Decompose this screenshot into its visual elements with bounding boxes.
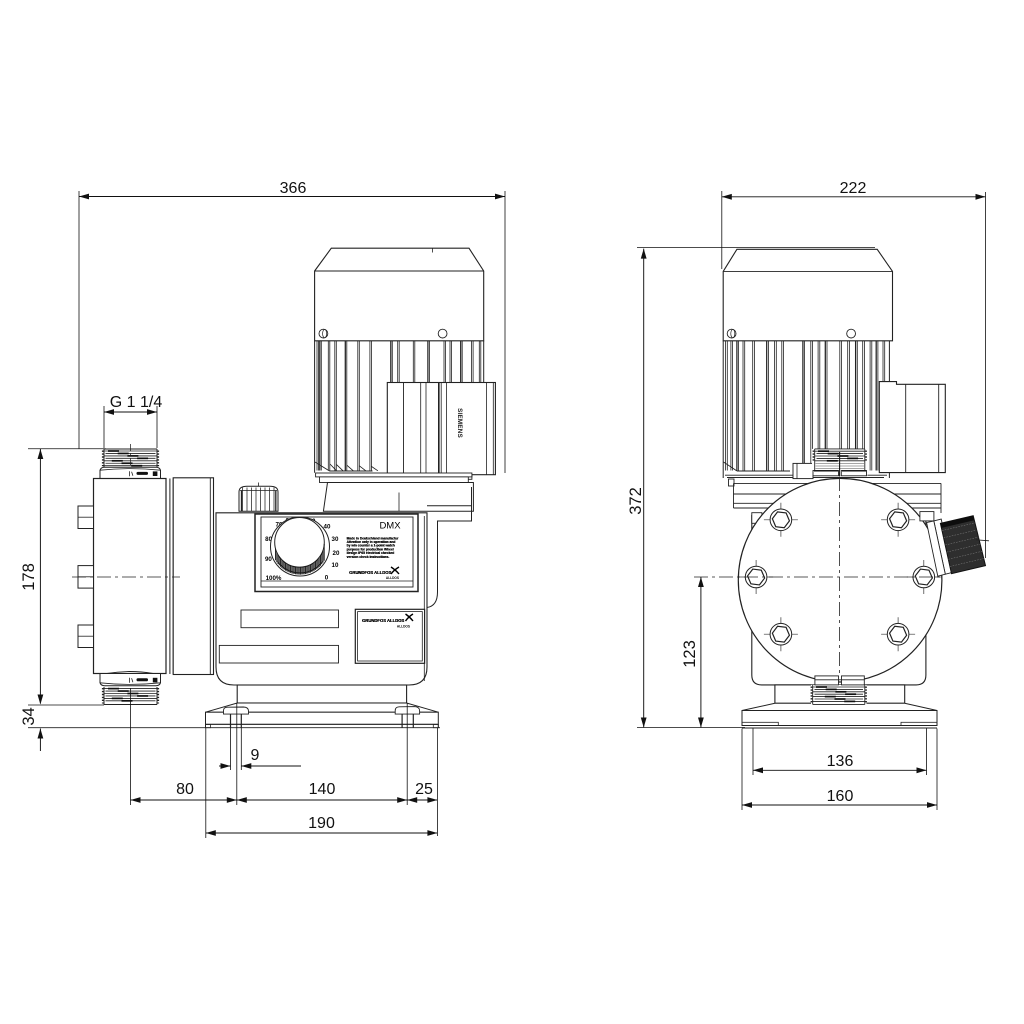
svg-text:222: 222: [840, 180, 867, 197]
svg-text:GRUNDFOS ALLDOS: GRUNDFOS ALLDOS: [362, 618, 404, 623]
svg-text:136: 136: [827, 753, 854, 770]
svg-text:version check instructions.: version check instructions.: [347, 555, 390, 559]
svg-text:178: 178: [20, 563, 38, 591]
svg-text:10: 10: [332, 562, 339, 569]
svg-text:G 1 1/4: G 1 1/4: [110, 394, 163, 411]
svg-text:40: 40: [324, 523, 331, 530]
svg-text:100%: 100%: [266, 575, 282, 582]
svg-text:30: 30: [332, 536, 339, 543]
svg-text:0: 0: [325, 575, 329, 582]
svg-text:25: 25: [415, 781, 433, 798]
svg-text:DMX: DMX: [379, 521, 401, 532]
svg-text:190: 190: [308, 815, 335, 832]
svg-text:80: 80: [176, 781, 194, 798]
svg-text:SIEMENS: SIEMENS: [456, 408, 463, 438]
svg-text:ALLDOS: ALLDOS: [397, 625, 410, 629]
svg-text:9: 9: [251, 747, 260, 764]
svg-text:GRUNDFOS ALLDOS: GRUNDFOS ALLDOS: [349, 570, 391, 575]
svg-text:20: 20: [333, 550, 340, 557]
svg-text:366: 366: [280, 180, 307, 197]
svg-text:140: 140: [309, 781, 336, 798]
svg-text:123: 123: [681, 640, 699, 668]
svg-text:ALLDOS: ALLDOS: [386, 576, 399, 580]
svg-text:160: 160: [827, 788, 854, 805]
svg-text:372: 372: [627, 487, 645, 515]
svg-text:90: 90: [265, 556, 272, 563]
svg-text:34: 34: [20, 707, 38, 725]
